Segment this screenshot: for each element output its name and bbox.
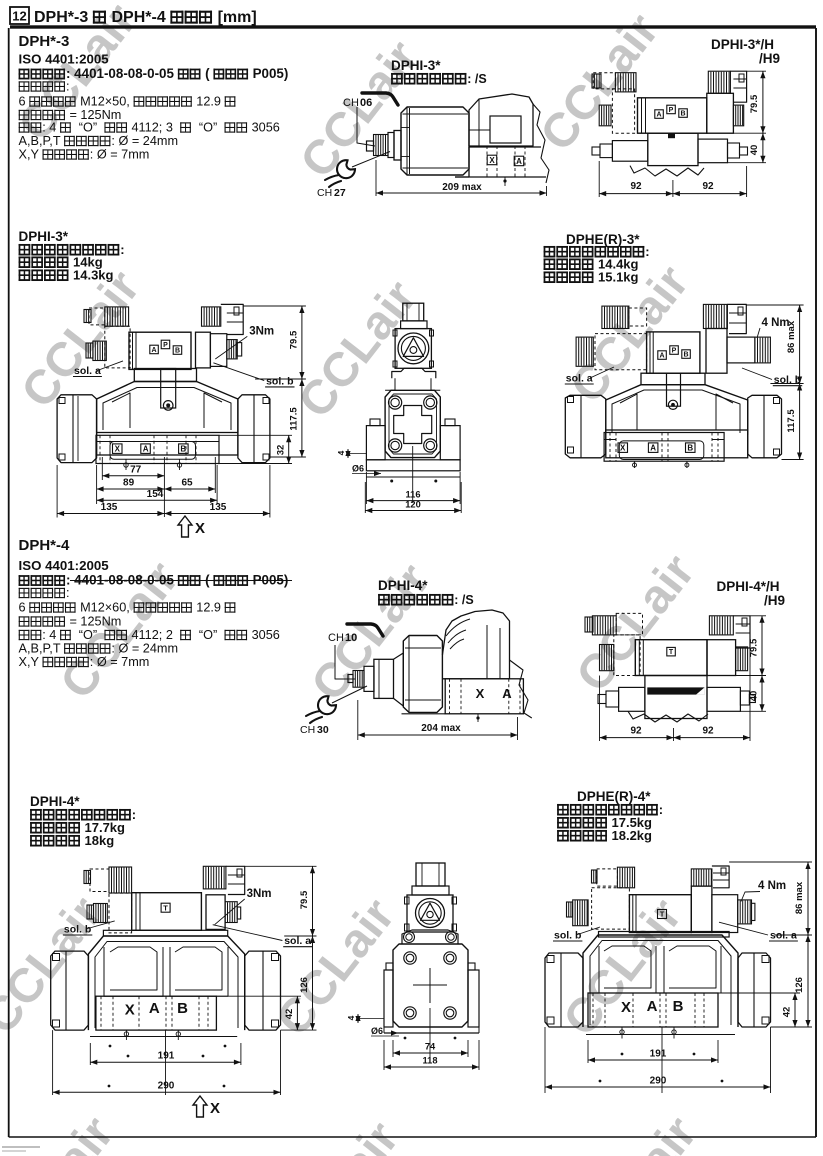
svg-text:B: B [687,444,693,453]
svg-text:DPHE(R)-4*: DPHE(R)-4* [577,789,651,804]
svg-text:DPHI-4*: DPHI-4* [30,794,80,809]
svg-text:: 4401-08-08-0-05: : 4401-08-08-0-05 [66,66,174,81]
svg-text:B: B [683,352,688,359]
svg-text:A,B,P,T: A,B,P,T [19,134,61,148]
svg-text:15.1kg: 15.1kg [598,270,639,285]
svg-text:CCLair: CCLair [553,889,692,1046]
svg-text:3Nm: 3Nm [249,326,274,338]
svg-text:X: X [195,520,205,537]
svg-text:42: 42 [782,1007,793,1018]
svg-text:: Ø = 7mm: : Ø = 7mm [90,148,150,162]
svg-text:X,Y: X,Y [19,148,40,162]
svg-text:“O”: “O” [79,628,97,642]
svg-text:T: T [163,903,168,912]
svg-text:: /S: : /S [467,72,486,86]
svg-text:4: 4 [336,450,346,455]
svg-text:/H9: /H9 [759,51,780,66]
svg-text:sol. b: sol. b [774,374,801,386]
svg-text:: 4: : 4 [42,121,56,135]
svg-text:191: 191 [158,1051,175,1062]
svg-text:4112; 2: 4112; 2 [132,628,173,642]
svg-text:32: 32 [275,445,286,456]
svg-text:B: B [680,111,685,118]
svg-text:65: 65 [181,478,193,489]
svg-text:P005): P005) [253,66,289,81]
svg-text:A: A [650,444,656,453]
svg-text:ISO 4401:2005: ISO 4401:2005 [19,52,110,67]
svg-text:86 max: 86 max [794,881,805,914]
svg-text:CH: CH [317,187,332,199]
svg-text:: Ø = 24mm: : Ø = 24mm [111,642,178,656]
svg-text:191: 191 [650,1049,667,1060]
svg-text:12.9: 12.9 [196,601,221,615]
svg-text:79.5: 79.5 [289,330,300,349]
svg-text:290: 290 [650,1076,667,1087]
svg-text:X: X [210,1100,220,1117]
svg-text:sol. b: sol. b [64,924,91,936]
svg-text::: : [132,807,136,822]
svg-text:DPHI-3*: DPHI-3* [19,229,69,244]
svg-text:DPHI-3*/H: DPHI-3*/H [711,37,774,52]
svg-text:P: P [669,107,674,114]
svg-text:DPHI-4*: DPHI-4* [378,578,428,593]
svg-text:“O”: “O” [199,628,217,642]
svg-text:sol. b: sol. b [554,930,581,942]
svg-text:92: 92 [702,181,714,192]
svg-text:10: 10 [345,632,357,644]
svg-text:Ø6: Ø6 [352,464,364,474]
svg-text:126: 126 [794,977,805,993]
svg-text:135: 135 [101,502,118,513]
svg-text:X: X [621,999,631,1016]
svg-text:3Nm: 3Nm [247,888,272,900]
svg-text:77: 77 [130,465,142,476]
svg-text:A,B,P,T: A,B,P,T [19,642,61,656]
svg-text:: 4: : 4 [42,628,56,642]
svg-text:T: T [669,649,674,656]
svg-text:Ø6: Ø6 [371,1026,383,1036]
svg-text:CCLair: CCLair [568,1107,707,1156]
svg-text:74: 74 [425,1042,436,1052]
svg-text:DPH*-3: DPH*-3 [34,9,88,26]
svg-text:86 max: 86 max [786,320,797,353]
svg-text:B: B [180,445,186,454]
svg-text:117.5: 117.5 [289,407,300,431]
svg-text:4112; 3: 4112; 3 [132,121,173,135]
svg-text::: : [645,244,649,259]
svg-text:92: 92 [702,726,714,737]
svg-text:209 max: 209 max [442,182,482,193]
svg-text:B: B [673,998,684,1015]
svg-text:ISO 4401:2005: ISO 4401:2005 [19,558,110,573]
svg-text:154: 154 [147,489,164,500]
svg-text:X,Y: X,Y [19,655,40,669]
svg-text:DPH*-4: DPH*-4 [112,9,166,26]
svg-text:18kg: 18kg [85,833,115,848]
svg-text:CH: CH [300,724,315,736]
svg-text:: Ø = 7mm: : Ø = 7mm [90,655,150,669]
svg-text:= 125Nm: = 125Nm [70,615,122,629]
svg-text:117.5: 117.5 [786,409,797,433]
svg-text:27: 27 [334,187,346,199]
svg-text:79.5: 79.5 [299,890,310,909]
svg-text:“O”: “O” [79,121,97,135]
svg-text:A: A [143,445,149,454]
svg-text:135: 135 [210,502,227,513]
svg-text:CH: CH [328,632,344,644]
svg-text:4: 4 [346,1015,356,1020]
svg-text:4 Nm: 4 Nm [758,880,786,892]
svg-text:3056: 3056 [252,628,280,642]
svg-text:X: X [489,156,495,165]
svg-text:“O”: “O” [199,121,217,135]
svg-text:B: B [177,1000,188,1017]
svg-text::: : [659,802,663,817]
svg-text:116: 116 [406,490,421,500]
svg-text:DPH*-3: DPH*-3 [19,33,70,50]
svg-text:DPH*-4: DPH*-4 [19,537,71,554]
svg-text:6: 6 [19,95,26,109]
svg-text:DPHE(R)-3*: DPHE(R)-3* [566,232,640,247]
svg-text:3056: 3056 [252,121,280,135]
svg-text:CCLair: CCLair [288,271,427,428]
svg-text:A: A [659,353,664,360]
svg-text:(: ( [205,66,210,81]
svg-text:sol. a: sol. a [770,930,797,942]
svg-text:40: 40 [749,145,760,156]
svg-text:: /S: : /S [454,593,473,607]
svg-text:92: 92 [630,726,642,737]
svg-text::: : [66,586,70,600]
svg-text:30: 30 [317,724,329,736]
svg-text:X: X [125,1002,135,1019]
svg-text:sol. b: sol. b [266,375,293,387]
svg-text:06: 06 [360,97,372,109]
svg-text:sol. a: sol. a [566,373,593,385]
svg-text:290: 290 [158,1081,175,1092]
svg-text:126: 126 [299,977,310,993]
svg-text:T: T [660,910,665,919]
svg-text:A: A [151,347,156,354]
svg-text:B: B [175,348,180,355]
svg-text:M12×60,: M12×60, [80,601,130,615]
svg-text:CCLair: CCLair [270,1112,409,1156]
svg-text:204 max: 204 max [421,723,461,734]
svg-text:120: 120 [405,500,421,510]
svg-text:79.5: 79.5 [749,94,760,113]
svg-text:P: P [163,342,168,349]
svg-text:A: A [647,998,658,1015]
svg-text:89: 89 [123,478,135,489]
svg-text:P: P [672,348,677,355]
svg-text:DPHI-4*/H: DPHI-4*/H [717,579,780,594]
svg-text:A: A [656,112,661,119]
svg-text::: : [66,80,70,94]
svg-text:DPHI-3*: DPHI-3* [391,58,441,73]
svg-text:[mm]: [mm] [218,9,257,26]
svg-text:A: A [502,686,512,701]
svg-text:12: 12 [12,9,26,24]
svg-text::: : [120,242,124,257]
svg-text:sol. a: sol. a [284,935,311,947]
svg-text:118: 118 [423,1056,438,1066]
svg-text:12.9: 12.9 [196,95,221,109]
svg-text:CCLair: CCLair [0,1107,124,1156]
svg-text:A: A [516,157,522,166]
svg-text:92: 92 [630,181,642,192]
svg-text:X: X [476,686,485,701]
svg-text:A: A [149,1000,160,1017]
svg-text:CCLair: CCLair [816,238,823,395]
svg-text:M12×50,: M12×50, [80,95,130,109]
svg-text:/H9: /H9 [764,593,785,608]
svg-text:6: 6 [19,601,26,615]
svg-text:X: X [620,444,626,453]
svg-text:X: X [115,445,121,454]
svg-text:: Ø = 24mm: : Ø = 24mm [111,134,178,148]
svg-text:42: 42 [284,1009,295,1020]
svg-text:18.2kg: 18.2kg [612,828,653,843]
svg-text:14.3kg: 14.3kg [73,268,114,283]
